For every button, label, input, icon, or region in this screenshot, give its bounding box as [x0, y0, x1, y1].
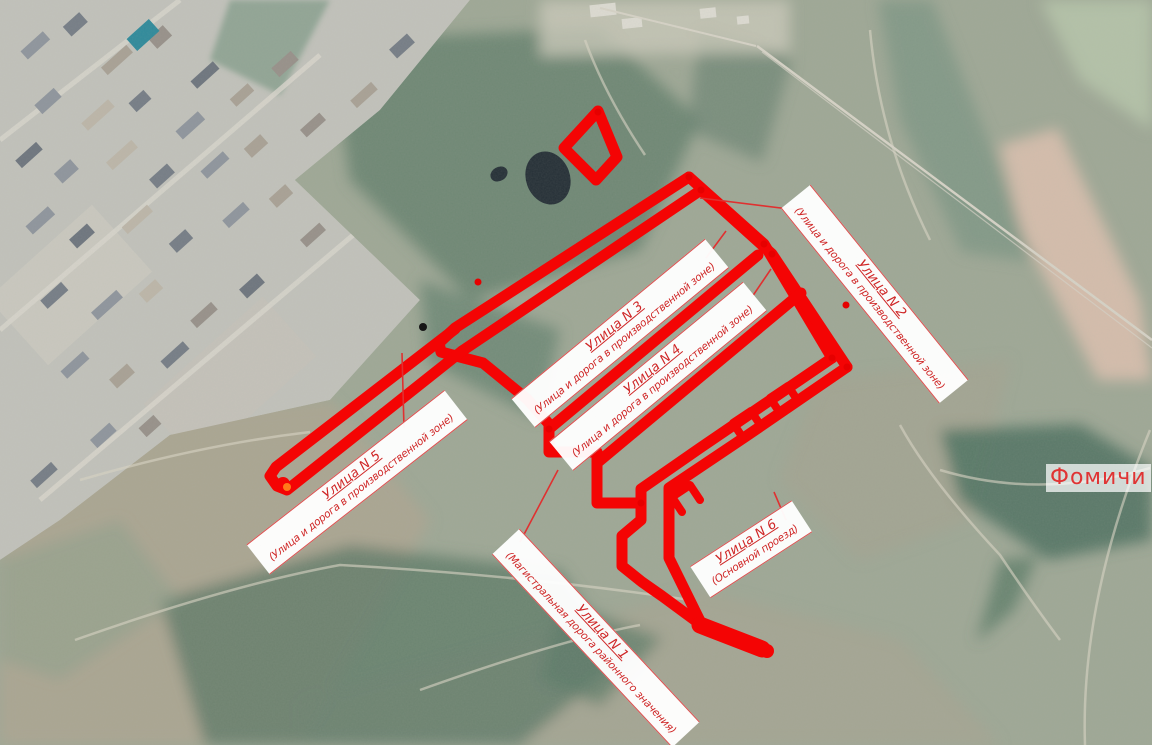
- place-label-fomichi: Фомичи: [1046, 464, 1151, 492]
- satellite-map[interactable]: Улица N 3 (Улица и дорога в производстве…: [0, 0, 1152, 745]
- black-survey-dot: [419, 323, 427, 331]
